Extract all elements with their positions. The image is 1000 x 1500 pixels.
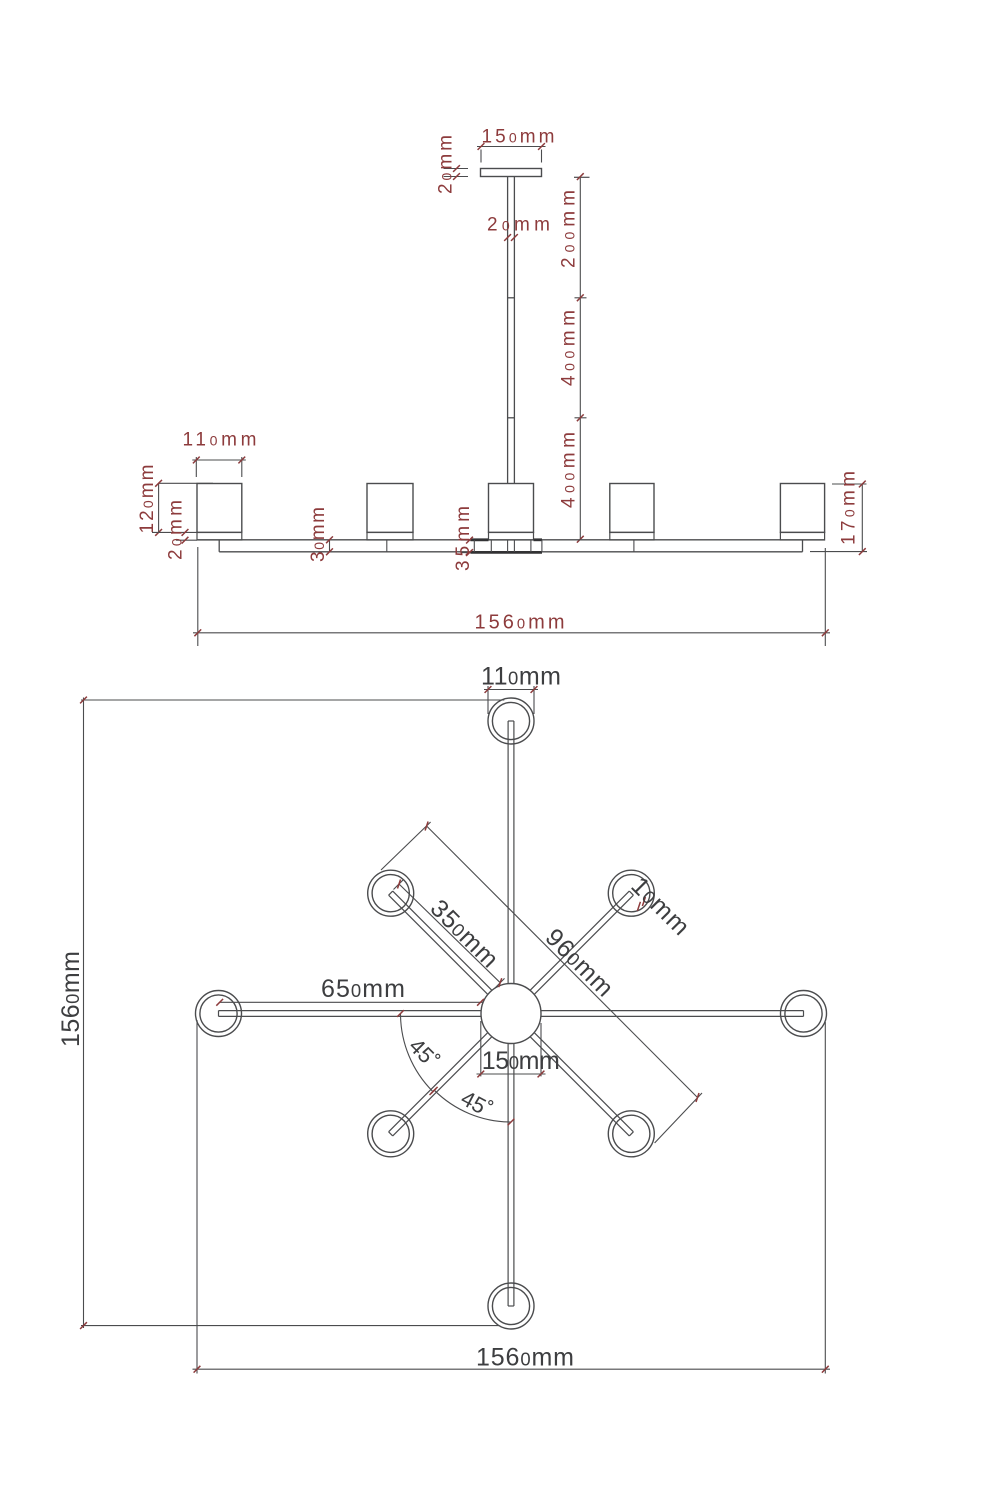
svg-text:20mm: 20mm bbox=[435, 135, 456, 194]
svg-text:110mm: 110mm bbox=[481, 663, 561, 691]
svg-text:120mm: 120mm bbox=[137, 465, 158, 534]
svg-text:650mm: 650mm bbox=[321, 975, 405, 1003]
svg-text:35mm: 35mm bbox=[453, 506, 474, 571]
svg-text:1560mm: 1560mm bbox=[476, 1344, 574, 1372]
svg-text:20mm: 20mm bbox=[487, 214, 550, 235]
svg-text:1560mm: 1560mm bbox=[57, 951, 85, 1047]
svg-text:150mm: 150mm bbox=[482, 1047, 560, 1075]
svg-text:20mm: 20mm bbox=[165, 500, 186, 560]
svg-text:30mm: 30mm bbox=[308, 507, 329, 562]
